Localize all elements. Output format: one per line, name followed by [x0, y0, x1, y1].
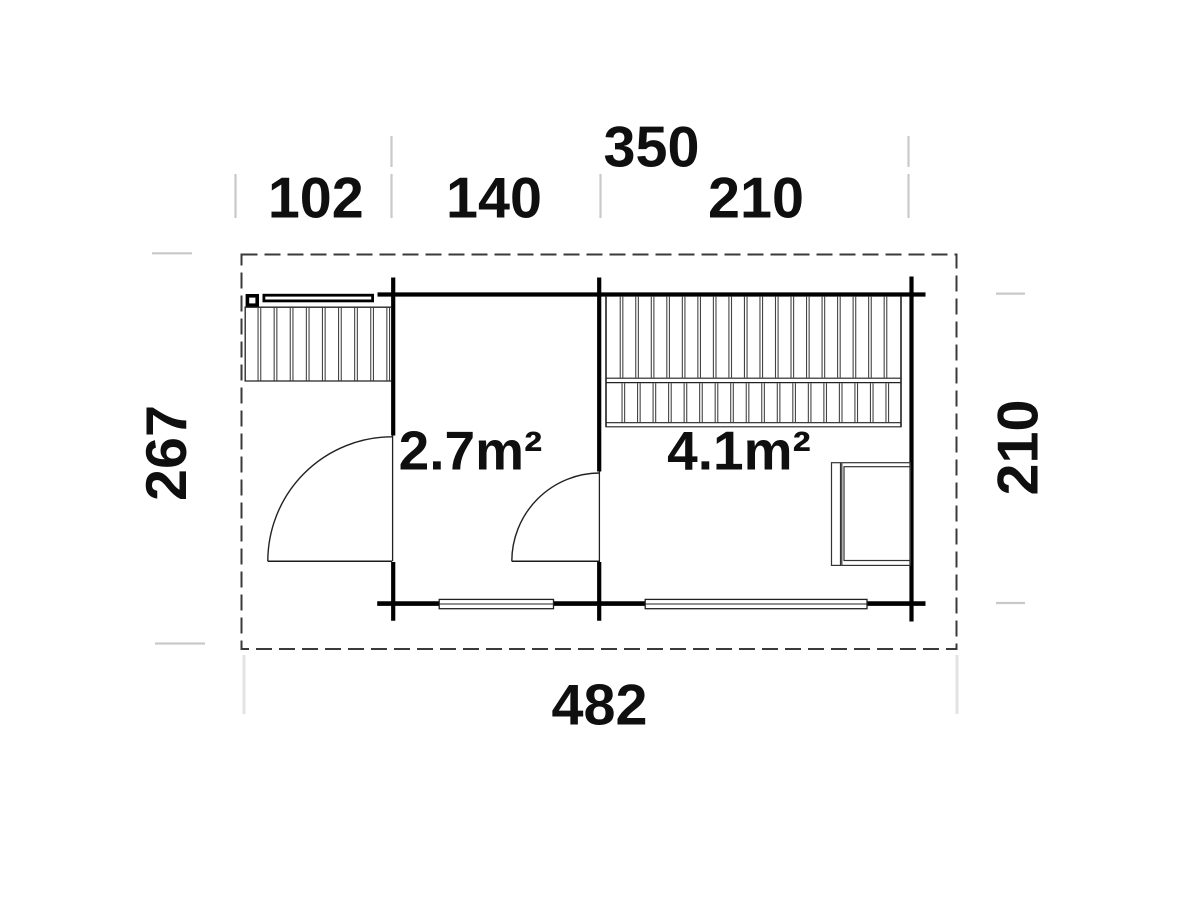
svg-text:2.7m²: 2.7m²	[399, 419, 543, 481]
svg-text:4.1m²: 4.1m²	[667, 419, 811, 481]
svg-text:210: 210	[708, 166, 804, 230]
svg-text:267: 267	[135, 405, 199, 501]
svg-text:210: 210	[987, 400, 1051, 496]
svg-text:140: 140	[446, 166, 542, 230]
svg-text:350: 350	[604, 116, 700, 180]
svg-text:102: 102	[268, 166, 364, 230]
svg-text:482: 482	[552, 674, 648, 738]
